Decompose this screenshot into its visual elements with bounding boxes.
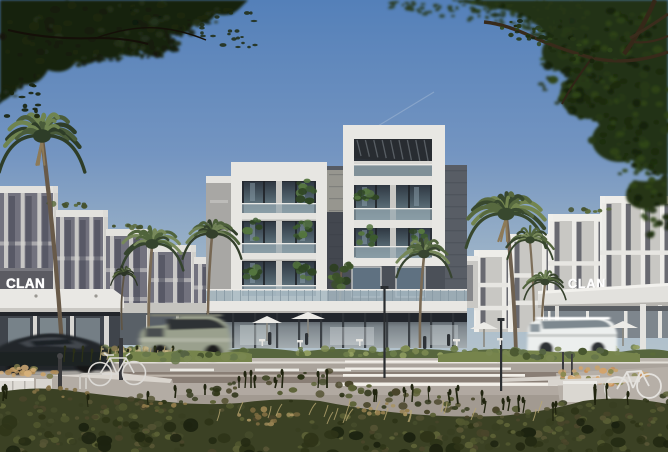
svg-text:CLAN: CLAN [6, 276, 45, 291]
